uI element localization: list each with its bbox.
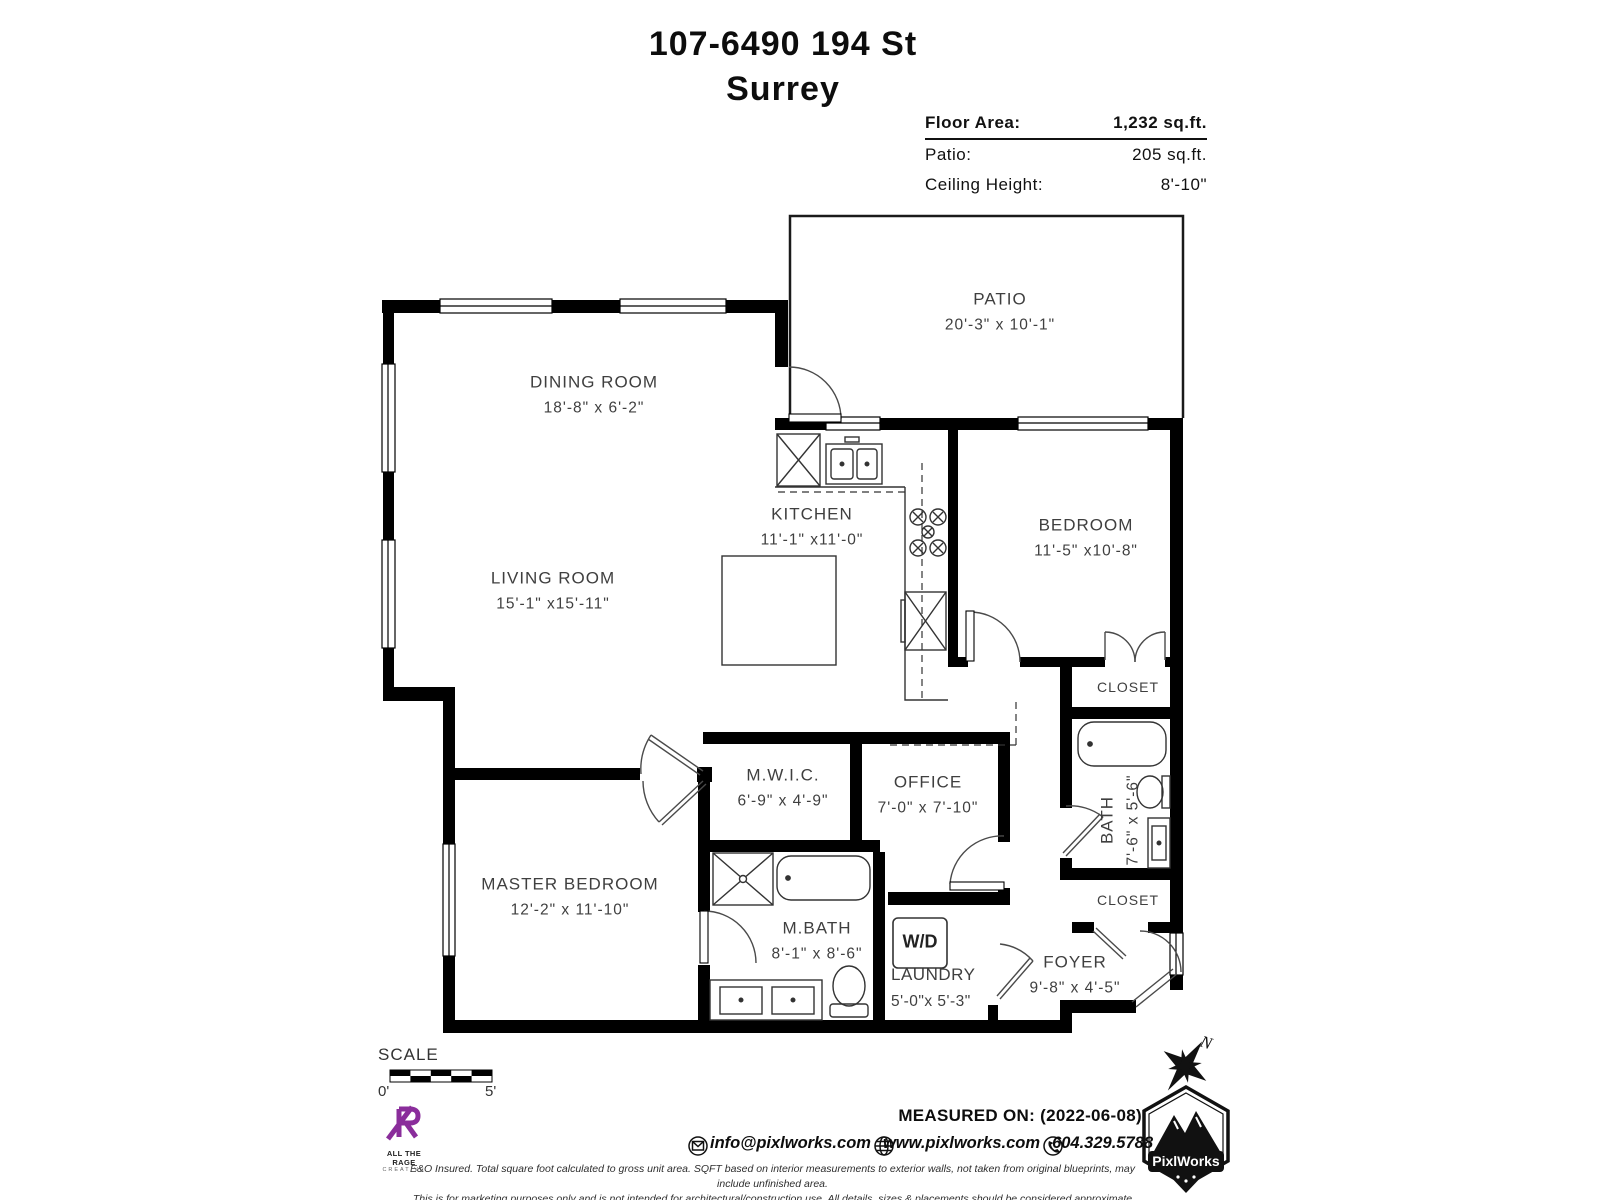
page-title-address: 107-6490 194 St bbox=[433, 22, 1133, 67]
all-the-rage-monogram-icon bbox=[382, 1103, 426, 1143]
room-label-kitchen: KITCHEN 11'-1" x11'-0" bbox=[761, 505, 864, 550]
measured-on-text: MEASURED ON: (2022-06-08) bbox=[878, 1106, 1142, 1126]
ceiling-height-row: Ceiling Height: 8'-10" bbox=[925, 170, 1207, 200]
scale-end-label: 5' bbox=[485, 1083, 496, 1100]
pixlworks-brand-text: PixlWorks bbox=[1152, 1153, 1220, 1169]
disclaimer-text: E&O Insured. Total square foot calculate… bbox=[400, 1162, 1145, 1200]
scale-bar bbox=[390, 1070, 492, 1082]
room-label-bedroom: BEDROOM 11'-5" x10'-8" bbox=[1034, 516, 1138, 561]
mbath-vanity-icon bbox=[710, 980, 822, 1020]
contact-email: info@pixlworks.com bbox=[710, 1134, 871, 1153]
floor-area-label: Floor Area: bbox=[925, 108, 1021, 138]
page-title-city: Surrey bbox=[433, 67, 1133, 112]
area-info-table: Floor Area: 1,232 sq.ft. Patio: 205 sq.f… bbox=[925, 108, 1207, 200]
contact-row: info@pixlworks.com www.pixlworks.com 604… bbox=[688, 1134, 1143, 1153]
patio-area-label: Patio: bbox=[925, 140, 971, 170]
kitchen-island bbox=[722, 556, 836, 665]
room-label-office: OFFICE 7'-0" x 7'-10" bbox=[878, 773, 979, 818]
floor-area-row: Floor Area: 1,232 sq.ft. bbox=[925, 108, 1207, 140]
all-the-rage-logo: ALL THE RAGE CREATIVE bbox=[374, 1103, 434, 1173]
contact-website: www.pixlworks.com bbox=[883, 1134, 1040, 1153]
all-the-rage-sub: CREATIVE bbox=[374, 1167, 434, 1173]
mbath-tub-icon bbox=[777, 856, 870, 900]
room-label-closet-foyer: CLOSET bbox=[1097, 892, 1159, 908]
shower-icon bbox=[713, 853, 773, 905]
contact-phone: 604.329.5788 bbox=[1052, 1134, 1153, 1153]
room-label-patio: PATIO 20'-3" x 10'-1" bbox=[945, 290, 1055, 335]
room-label-mbath: M.BATH 8'-1" x 8'-6" bbox=[771, 919, 862, 964]
scale-start-label: 0' bbox=[378, 1083, 389, 1100]
room-label-closet-bedroom: CLOSET bbox=[1097, 679, 1159, 695]
mbath-toilet-icon bbox=[830, 966, 868, 1017]
floor-area-value: 1,232 sq.ft. bbox=[1113, 108, 1207, 138]
ceiling-height-value: 8'-10" bbox=[1161, 170, 1207, 200]
scale-label: SCALE bbox=[378, 1045, 439, 1065]
room-label-master: MASTER BEDROOM 12'-2" x 11'-10" bbox=[481, 875, 658, 920]
kitchen-sink-icon bbox=[826, 437, 882, 484]
room-label-foyer: FOYER 9'-8" x 4'-5" bbox=[1029, 953, 1120, 998]
patio-area-row: Patio: 205 sq.ft. bbox=[925, 140, 1207, 170]
page-title: 107-6490 194 St Surrey bbox=[433, 22, 1133, 112]
ceiling-height-label: Ceiling Height: bbox=[925, 170, 1043, 200]
washer-dryer-label: W/D bbox=[903, 932, 938, 953]
room-label-living: LIVING ROOM 15'-1" x15'-11" bbox=[491, 569, 615, 614]
stove-icon bbox=[910, 509, 946, 556]
kitchen-fixtures bbox=[722, 434, 1016, 745]
all-the-rage-name: ALL THE RAGE bbox=[374, 1149, 434, 1167]
pixlworks-logo: PixlWorks bbox=[1144, 1087, 1228, 1193]
oven-icon bbox=[901, 592, 946, 650]
room-label-mwic: M.W.I.C. 6'-9" x 4'-9" bbox=[737, 766, 828, 811]
compass-north-label: N bbox=[1197, 1031, 1216, 1053]
floorplan-page: N PixlWorks bbox=[0, 0, 1600, 1200]
room-label-dining: DINING ROOM 18'-8" x 6'-2" bbox=[530, 373, 658, 418]
room-label-laundry: LAUNDRY 5'-0"x 5'-3" bbox=[891, 965, 975, 1011]
patio-area-value: 205 sq.ft. bbox=[1132, 140, 1207, 170]
room-label-bath: BATH 7'-6" x 5'-6" bbox=[1098, 774, 1143, 865]
bath-sink-icon bbox=[1148, 818, 1170, 868]
floorplan-canvas: N PixlWorks bbox=[0, 0, 1600, 1200]
